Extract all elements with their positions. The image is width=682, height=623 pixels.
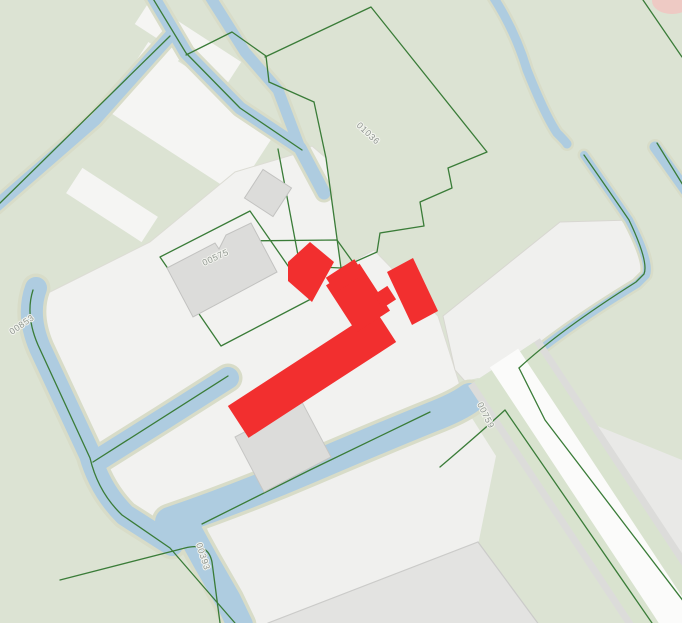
- map-canvas[interactable]: 01036 00575 00853 00759 00393: [0, 0, 682, 623]
- map-viewport[interactable]: 01036 00575 00853 00759 00393: [0, 0, 682, 623]
